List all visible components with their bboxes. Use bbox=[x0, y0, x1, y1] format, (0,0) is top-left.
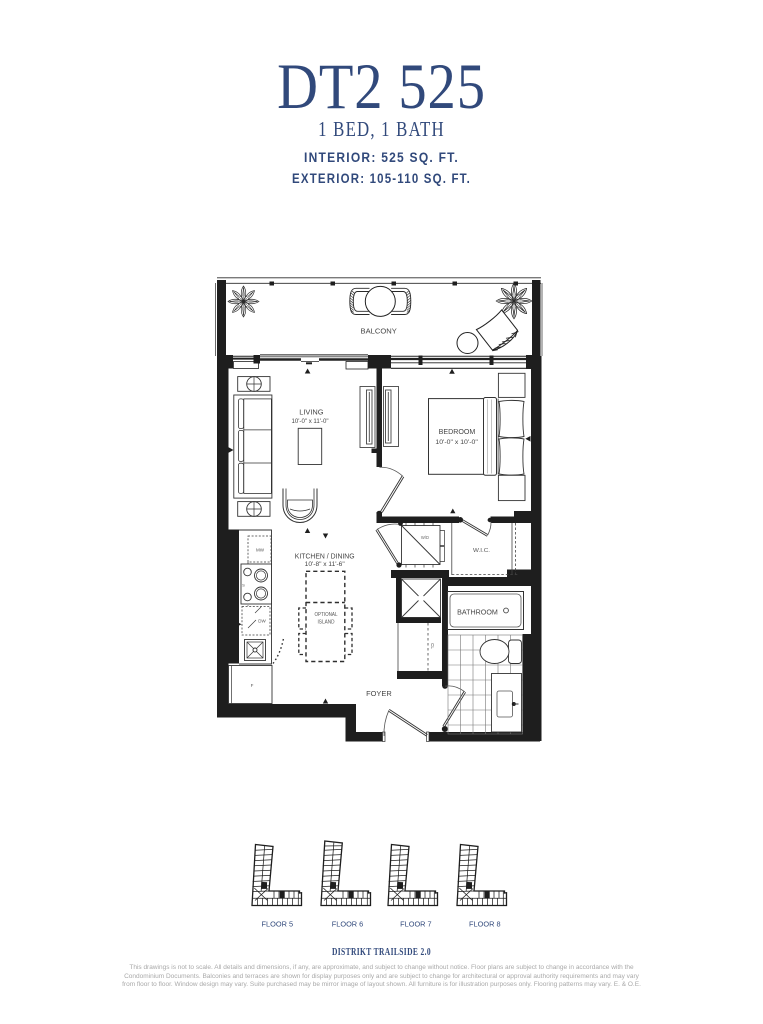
svg-text:FLOOR 6: FLOOR 6 bbox=[332, 922, 364, 929]
svg-text:BATHROOM: BATHROOM bbox=[457, 608, 498, 617]
svg-text:KITCHEN / DINING: KITCHEN / DINING bbox=[295, 552, 355, 561]
svg-text:F: F bbox=[251, 683, 254, 688]
svg-text:10'-0" x 11'-0": 10'-0" x 11'-0" bbox=[292, 418, 329, 425]
svg-text:FLOOR 7: FLOOR 7 bbox=[400, 922, 432, 929]
svg-text:ISLAND: ISLAND bbox=[318, 620, 335, 626]
svg-text:FOYER: FOYER bbox=[366, 689, 392, 698]
svg-text:CL: CL bbox=[430, 643, 435, 649]
svg-text:FLOOR 5: FLOOR 5 bbox=[262, 922, 294, 929]
svg-text:BEDROOM: BEDROOM bbox=[439, 427, 476, 436]
svg-text:10'-0" x 10'-0": 10'-0" x 10'-0" bbox=[435, 439, 477, 446]
svg-text:FLOOR 8: FLOOR 8 bbox=[469, 922, 501, 929]
svg-text:W.I.C.: W.I.C. bbox=[473, 548, 491, 554]
svg-text:10'-8" x 11'-6": 10'-8" x 11'-6" bbox=[305, 561, 345, 568]
svg-text:DW: DW bbox=[258, 619, 266, 624]
svg-text:BALCONY: BALCONY bbox=[361, 327, 397, 336]
svg-text:MW: MW bbox=[256, 548, 265, 553]
svg-text:LIVING: LIVING bbox=[299, 408, 324, 417]
svg-text:OPTIONAL: OPTIONAL bbox=[315, 612, 338, 618]
svg-text:S: S bbox=[242, 583, 245, 588]
svg-text:W/D: W/D bbox=[421, 535, 429, 540]
